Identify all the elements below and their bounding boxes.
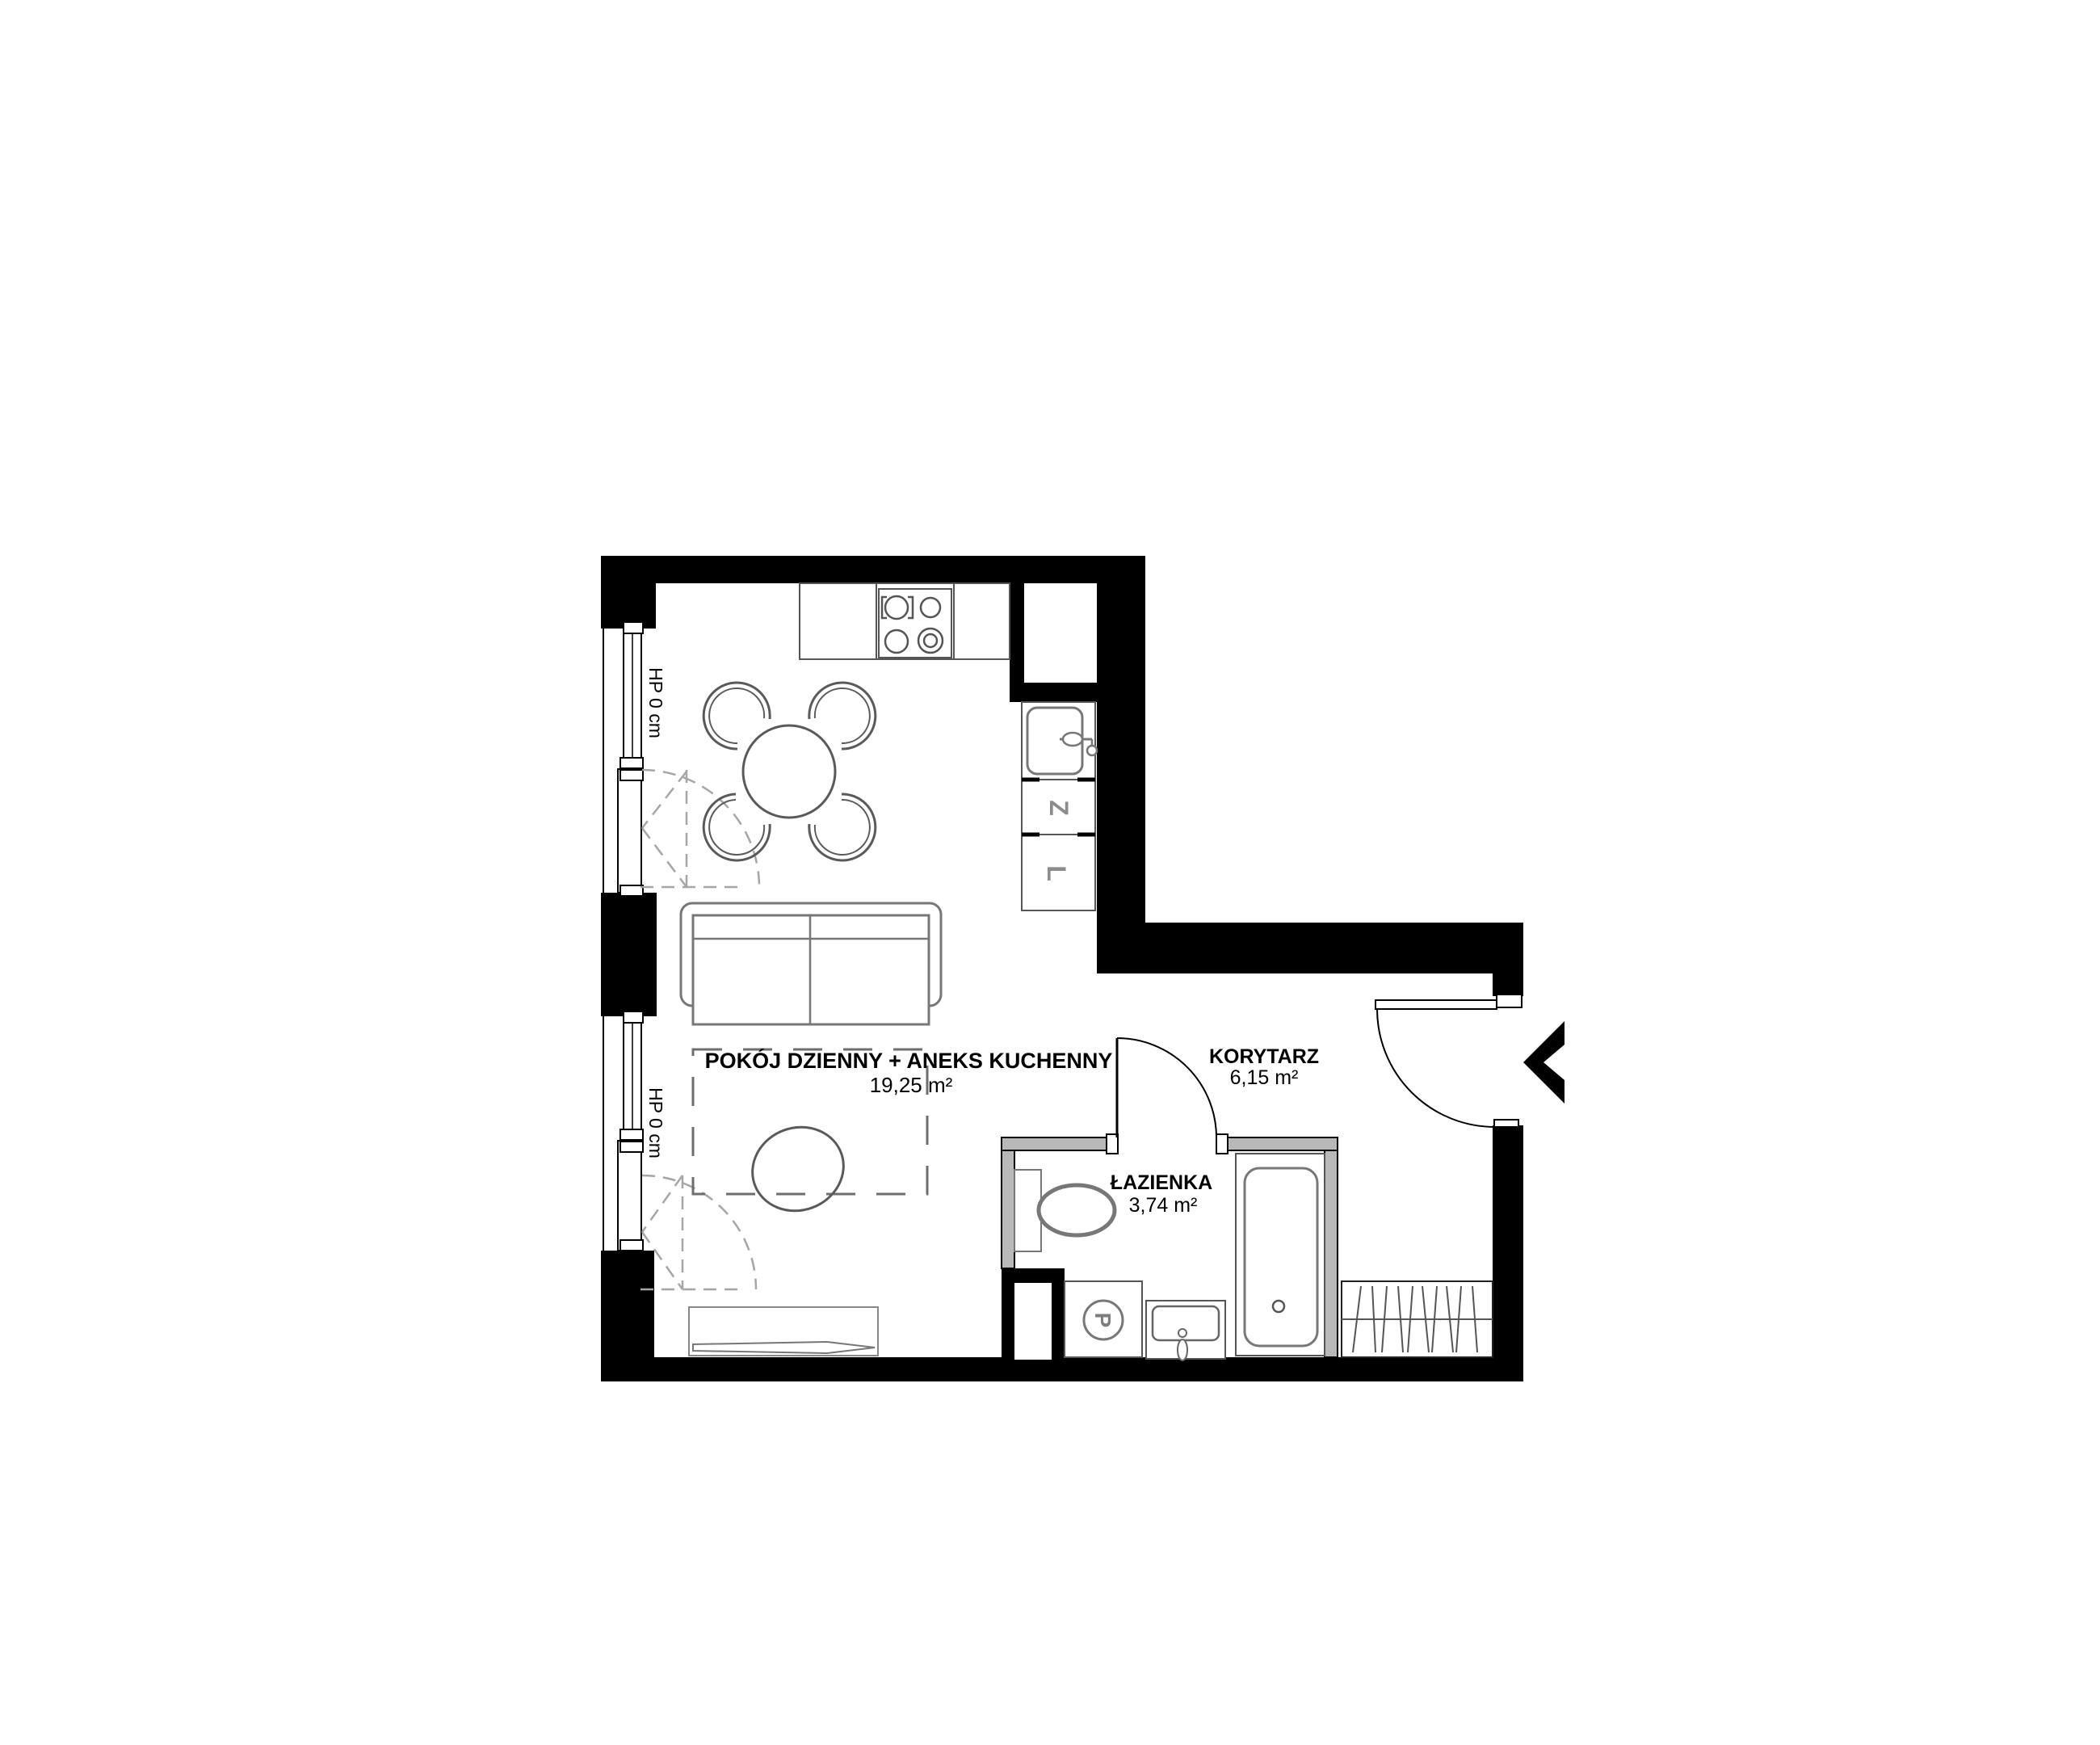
- bathroom-door-arc: [1117, 1038, 1216, 1137]
- radiator: [1342, 1281, 1493, 1357]
- chair-bottom-right-inner: [815, 800, 870, 855]
- entry-door-jamb-top: [1497, 994, 1522, 1007]
- swing-arc-lower: [642, 1175, 756, 1289]
- toilet-bowl: [1039, 1185, 1115, 1235]
- wall-corner-bottom-left: [601, 1251, 654, 1364]
- chair-top-right-inner: [815, 688, 870, 743]
- bath-sink-tap-head: [1178, 1329, 1186, 1337]
- wall-bottom: [601, 1357, 1523, 1381]
- entry-door-jamb-bottom: [1494, 1120, 1518, 1127]
- washer-letter: P: [1090, 1313, 1115, 1328]
- window-lower-cap-top: [624, 1011, 643, 1023]
- dining-table: [743, 725, 835, 818]
- partition-top-right: [1228, 1137, 1338, 1150]
- window-lower-cap-bottom: [620, 1240, 643, 1251]
- kitchen-sink-tap-valve: [1063, 733, 1082, 746]
- window-upper-cap-bottom: [620, 885, 643, 896]
- tv-icon: [693, 1342, 875, 1353]
- bathtub-drain: [1273, 1301, 1284, 1312]
- window-upper-door-sash: [618, 769, 641, 893]
- swing-arc-upper: [642, 770, 759, 887]
- wall-korytarz-top: [1097, 923, 1523, 973]
- window-lower-cap-mid1: [620, 1129, 643, 1140]
- swing-tilt-upper-1: [642, 772, 687, 828]
- floor-plan-canvas: Z L: [0, 0, 2100, 1745]
- bathroom-door-jamb-right: [1216, 1134, 1228, 1154]
- wall-kitchen-right: [1097, 556, 1145, 923]
- label-living-room-area: 19,25 m²: [870, 1073, 953, 1097]
- label-bathroom-area: 3,74 m²: [1129, 1194, 1198, 1217]
- sofa: [681, 903, 941, 1024]
- partition-left: [1002, 1150, 1014, 1268]
- entry-door-leaf: [1375, 1000, 1497, 1009]
- window-lower-door-sash: [618, 1141, 641, 1251]
- dining-set: [703, 683, 876, 860]
- floor-plan-drawing: Z L: [0, 0, 2100, 1745]
- wall-niche-left: [1010, 556, 1024, 702]
- wall-left-pier: [601, 893, 657, 1016]
- chair-bottom-left-inner: [709, 800, 764, 855]
- swing-tilt-upper-2: [642, 828, 687, 887]
- window-upper-cap-mid1: [620, 758, 643, 768]
- partition-top-left: [1002, 1137, 1109, 1150]
- window-upper-cap-top: [624, 622, 643, 633]
- label-corridor-name: KORYTARZ: [1209, 1045, 1319, 1068]
- entrance-arrow-icon: [1523, 1021, 1564, 1104]
- hob-burner-3: [885, 630, 908, 653]
- label-bathroom-name: ŁAZIENKA: [1111, 1171, 1212, 1194]
- bathtub-inner: [1245, 1168, 1317, 1346]
- wall-corner-top-left: [601, 556, 656, 629]
- balcony-door-swings: [640, 770, 759, 1289]
- chair-top-left-inner: [709, 688, 764, 743]
- tv-cabinet: [689, 1307, 878, 1356]
- wall-top: [601, 556, 1145, 583]
- fridge-letter: L: [1042, 865, 1071, 881]
- swing-tilt-lower-1: [642, 1175, 682, 1232]
- shaft-opening: [1014, 1283, 1052, 1360]
- wall-niche-bottom: [1010, 683, 1097, 702]
- label-living-room-name: POKÓJ DZIENNY + ANEKS KUCHENNY: [705, 1048, 1113, 1073]
- dishwasher-letter: Z: [1044, 800, 1073, 816]
- label-corridor-area: 6,15 m²: [1230, 1066, 1299, 1089]
- doors: [1117, 994, 1522, 1137]
- kitchen-counter: [800, 583, 1010, 659]
- hob-burner-2: [921, 598, 940, 617]
- bath-sink-tap-body: [1178, 1339, 1187, 1360]
- wall-entry-top: [1493, 973, 1523, 996]
- partition-right: [1325, 1150, 1338, 1357]
- hob-burner-1: [885, 596, 908, 619]
- window-upper-cap-mid2: [620, 770, 643, 780]
- hob-burner-4-inner: [924, 634, 937, 647]
- kitchen-sink-tap-knob: [1087, 746, 1097, 755]
- label-window-lower-hp: HP 0 cm: [645, 1087, 666, 1158]
- label-window-upper-hp: HP 0 cm: [645, 667, 666, 738]
- entry-door-arc: [1377, 1009, 1495, 1127]
- wall-entry-bottom: [1493, 1125, 1523, 1357]
- window-lower-cap-mid2: [620, 1142, 643, 1152]
- pouf: [741, 1115, 855, 1224]
